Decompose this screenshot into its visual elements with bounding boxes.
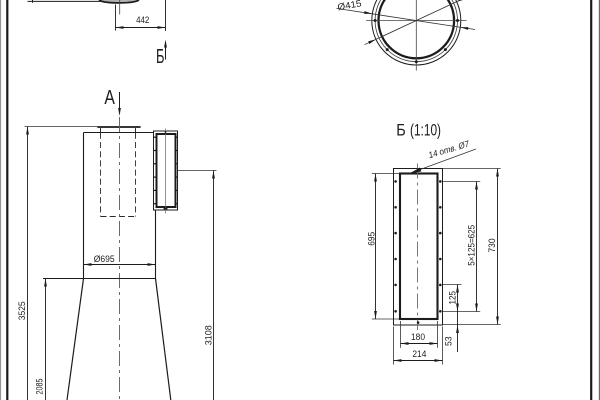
- svg-text:А: А: [104, 87, 115, 109]
- svg-text:Б: Б: [396, 121, 406, 139]
- svg-text:53: 53: [444, 337, 454, 347]
- svg-text:Ø695: Ø695: [94, 254, 115, 264]
- svg-text:2085: 2085: [35, 379, 45, 395]
- svg-text:730: 730: [487, 239, 497, 253]
- svg-text:214: 214: [412, 349, 426, 359]
- svg-text:3525: 3525: [17, 301, 27, 320]
- svg-text:695: 695: [367, 232, 377, 246]
- svg-text:5×125=625: 5×125=625: [467, 225, 477, 266]
- svg-text:125: 125: [447, 291, 457, 305]
- svg-text:3108: 3108: [203, 325, 213, 345]
- svg-text:442: 442: [136, 15, 149, 25]
- svg-text:(1:10): (1:10): [410, 121, 441, 139]
- svg-text:180: 180: [411, 332, 425, 342]
- svg-text:Б: Б: [156, 46, 165, 68]
